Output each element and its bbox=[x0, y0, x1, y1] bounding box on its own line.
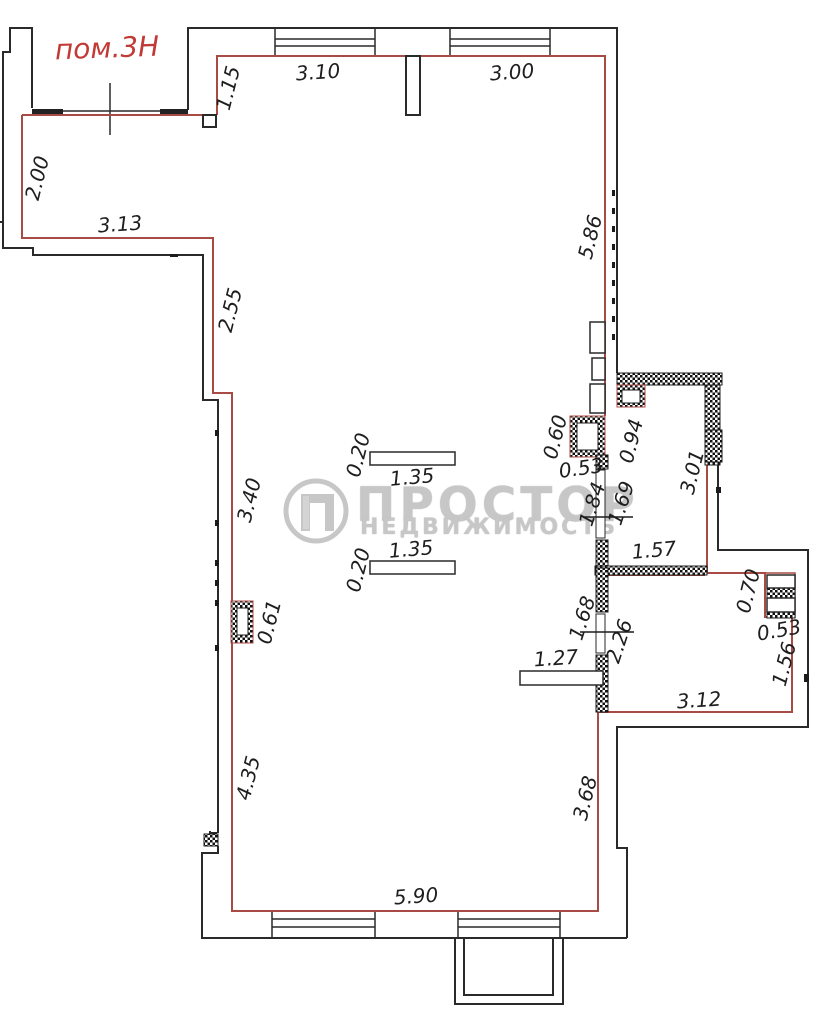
outer-walls bbox=[0, 28, 808, 938]
floor-plan-drawing bbox=[0, 0, 813, 1024]
premise-boundary bbox=[22, 56, 795, 911]
counters bbox=[370, 452, 603, 685]
vent-shafts bbox=[590, 322, 605, 413]
bottom-windows bbox=[272, 911, 560, 938]
balcony bbox=[455, 938, 563, 1004]
hatched-walls bbox=[204, 373, 795, 846]
wall-piers bbox=[203, 56, 420, 127]
room-label: пом.3Н bbox=[54, 30, 159, 67]
floor-plan-page: ПРОСТОР НЕДВИЖИМОСТЬ bbox=[0, 0, 813, 1024]
